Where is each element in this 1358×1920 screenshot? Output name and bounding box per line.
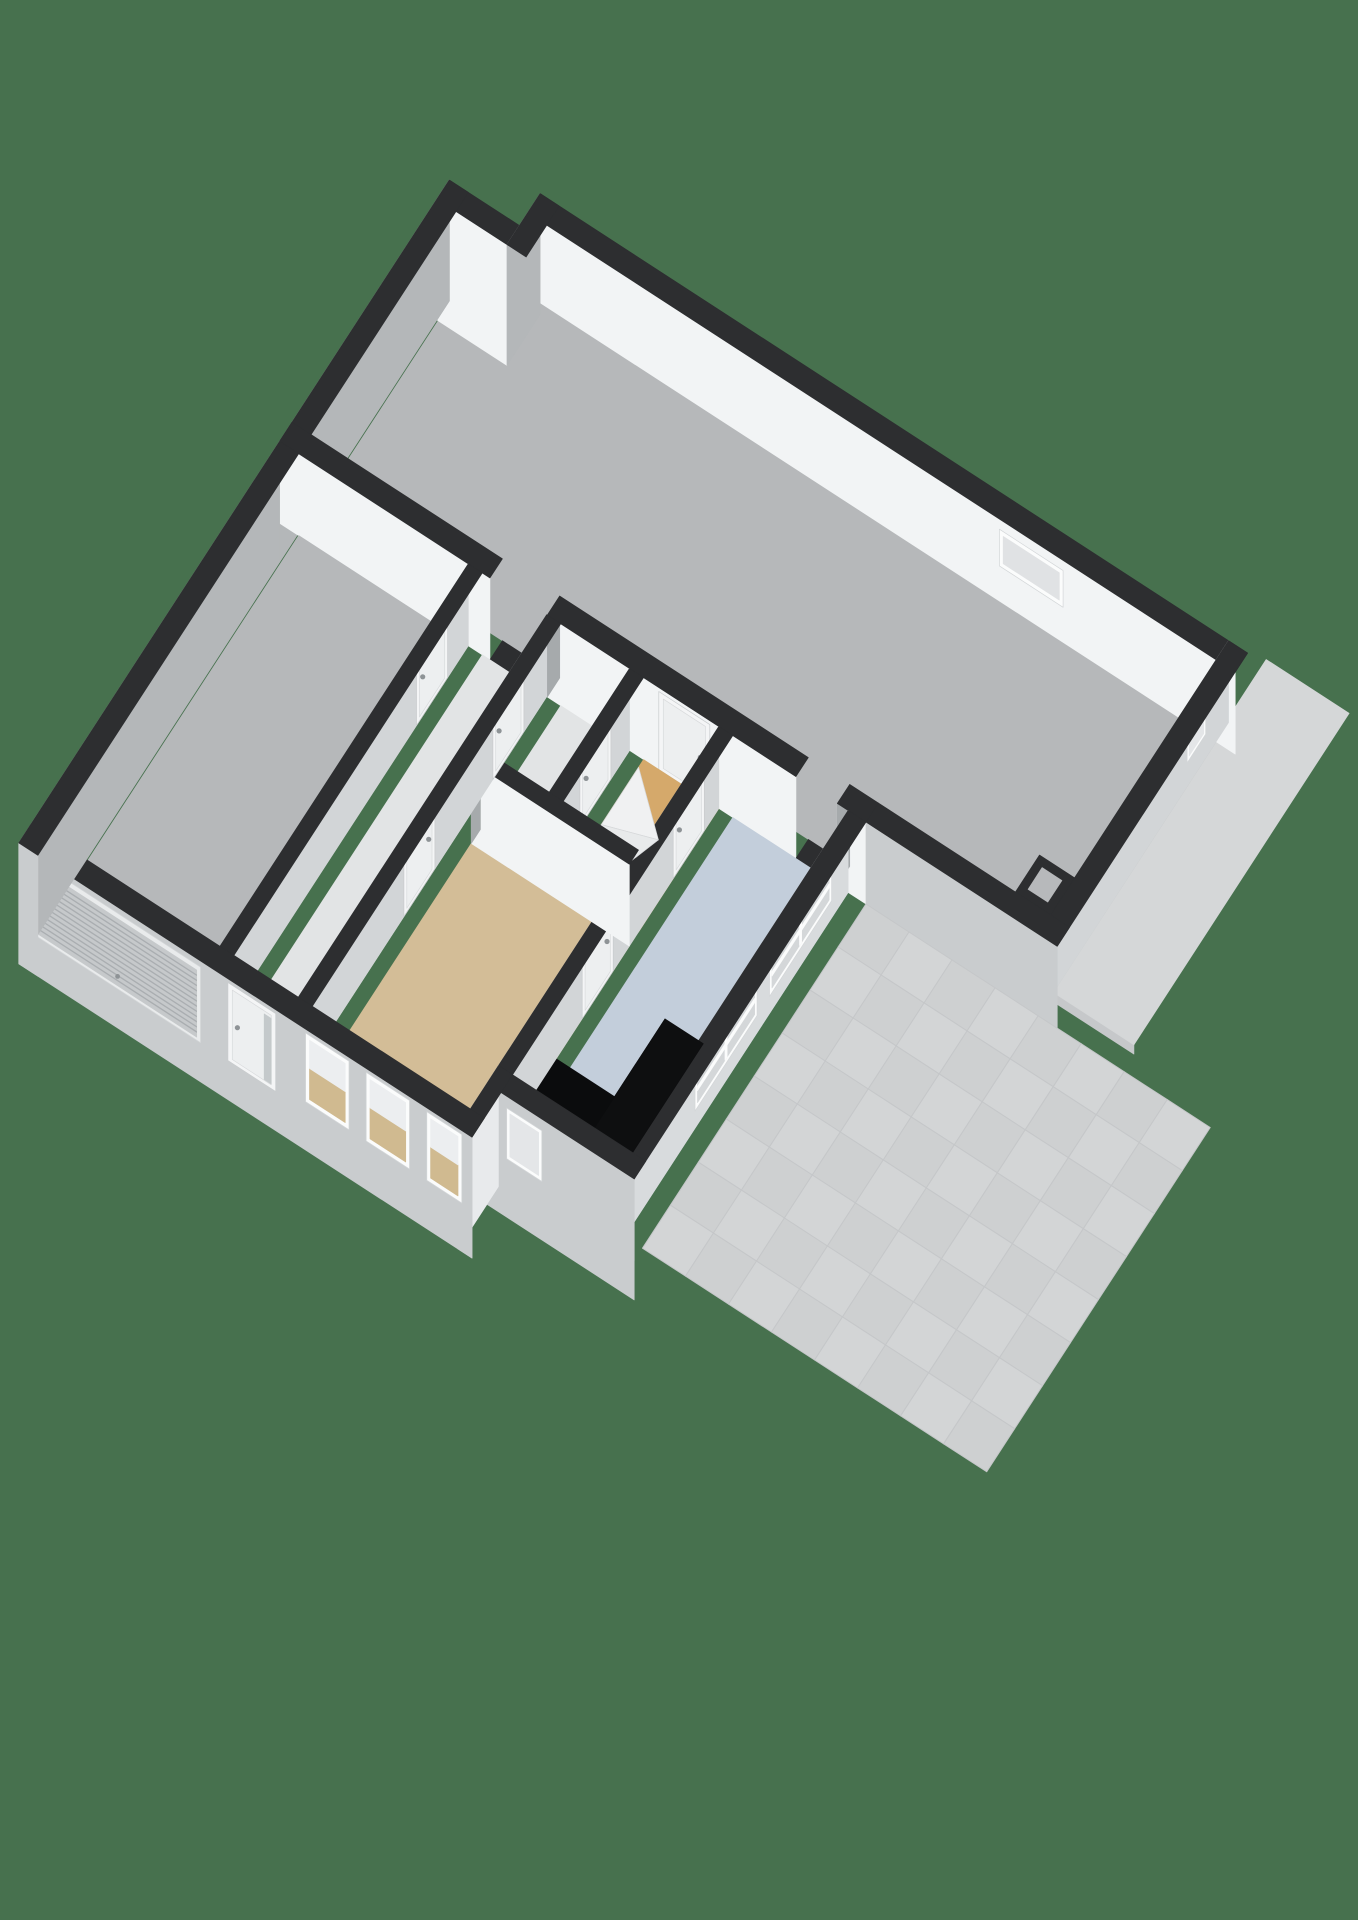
wall-south-main-garage-door-handle-icon [115, 974, 120, 979]
wall-corridor-east-door-handle-icon [426, 837, 431, 842]
wall-kitchen-west-door-handle-icon [604, 939, 609, 944]
wall-south-main-door-handle-icon [235, 1025, 240, 1030]
wall-west-main-jamb [19, 843, 38, 976]
wall-garage-east-door-handle-icon [420, 674, 425, 679]
wall-south-main-door-sidelight [264, 1014, 271, 1084]
wall-corridor-east-door-handle-icon [497, 728, 502, 733]
floorplan-3d-view [0, 0, 1358, 1920]
wall-kitchen-west-door-handle-icon [677, 827, 682, 832]
wall-bathroom-east-door-handle-icon [584, 776, 589, 781]
floorplan-canvas [0, 0, 1358, 1920]
